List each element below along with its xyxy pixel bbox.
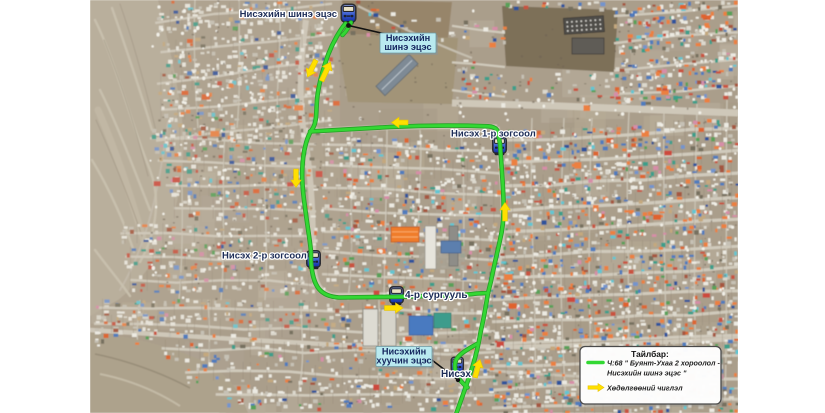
- svg-text:Нисэхийн шинэ эцэс: Нисэхийн шинэ эцэс: [240, 9, 337, 20]
- svg-text:Нисэх 2-р зогсоол: Нисэх 2-р зогсоол: [222, 251, 307, 262]
- svg-text:Нисэх 1-р зогсоол: Нисэх 1-р зогсоол: [451, 129, 536, 140]
- svg-text:4-р сургууль: 4-р сургууль: [405, 290, 468, 301]
- svg-text:шинэ эцэс: шинэ эцэс: [384, 42, 431, 52]
- svg-text:хуучин эцэс: хуучин эцэс: [376, 356, 431, 366]
- svg-text:Хөдөлгөөний чиглэл: Хөдөлгөөний чиглэл: [606, 384, 683, 393]
- svg-text:Нисэх: Нисэх: [441, 369, 471, 380]
- svg-text:Ч:68 " Буянт-Ухаа 2 хороолол -: Ч:68 " Буянт-Ухаа 2 хороолол -: [607, 359, 721, 368]
- svg-text:Нисэхийн шинэ эцэс ": Нисэхийн шинэ эцэс ": [607, 369, 687, 378]
- svg-text:Тайлбар:: Тайлбар:: [631, 349, 669, 359]
